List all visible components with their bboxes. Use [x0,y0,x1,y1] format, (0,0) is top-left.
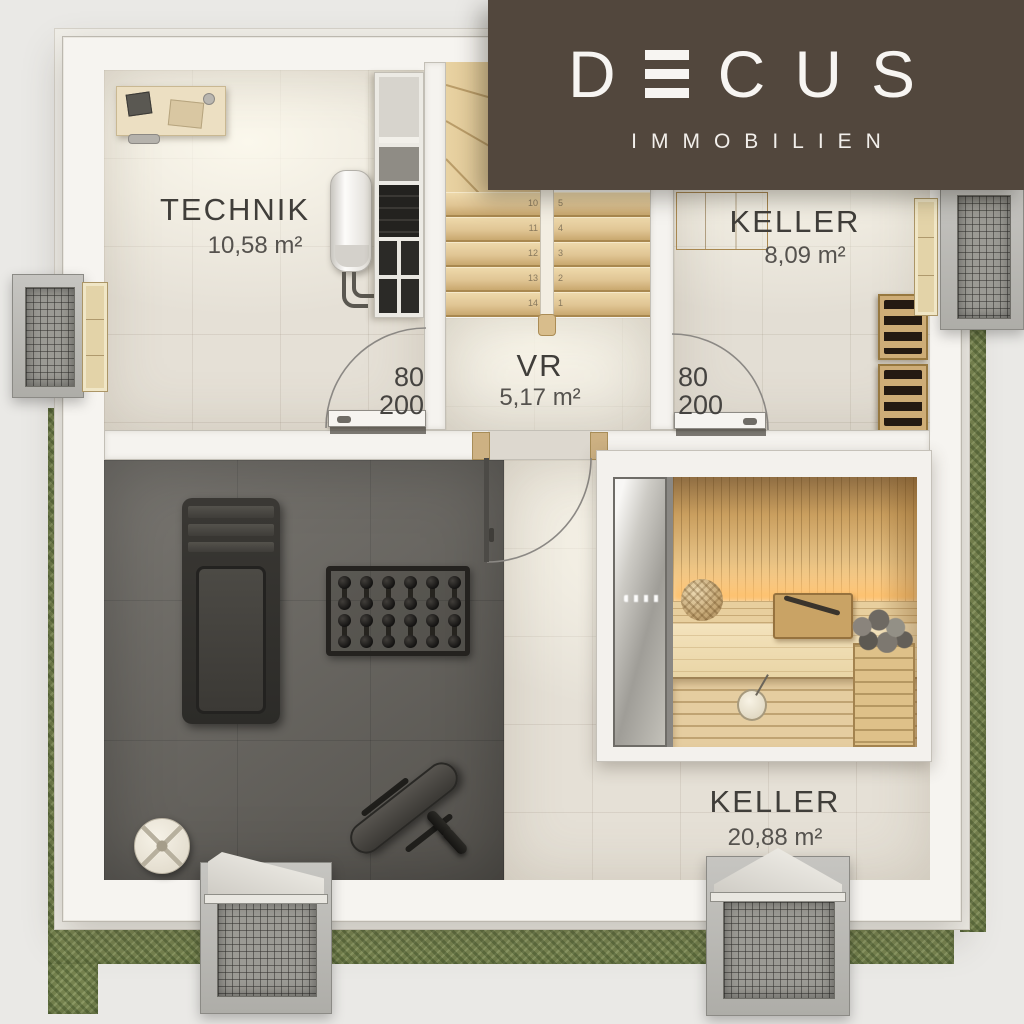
dumbbell [404,614,417,648]
brand-letter: D [568,36,616,112]
wine-rack [878,364,928,432]
stair-newel-post [538,314,556,336]
wine-bottles [884,370,922,426]
dumbbell [448,576,461,610]
dumbbell [404,576,417,610]
basement-window-left [82,282,108,392]
sauna-led-display [624,595,660,602]
brand-panel: D CUS IMMOBILIEN [488,0,1024,190]
desk-chair [128,134,160,144]
treadmill [182,498,280,724]
room-area-keller-large: 20,88 m² [650,824,900,852]
dumbbell-row [338,614,461,648]
glass-door-handle [489,528,494,542]
room-label-keller-small: KELLER [670,204,920,240]
rattan-ball [681,579,723,621]
stair-center-rail [540,188,554,318]
glass-door-leaf [484,458,489,562]
treadmill-console [188,506,274,518]
door-threshold [676,428,766,436]
desk-lamp [203,93,215,105]
sauna-bucket [737,689,767,721]
window-frame-bar [204,894,328,904]
well-grate [25,287,75,387]
room-area-keller-small: 8,09 m² [680,242,930,270]
shelf-compartment [379,77,419,143]
technik-door-width-label: 80 [318,364,424,390]
room-label-technik: TECHNIK [110,192,360,228]
dumbbell [338,614,351,648]
room-label-keller-large: KELLER [650,784,900,820]
stair-step-number: 2 [558,273,572,283]
keller-door-width-label: 80 [678,364,784,390]
desk-papers [168,99,205,128]
door-threshold [330,426,426,434]
technik-door-height-label: 200 [318,392,424,418]
brand-subtitle: IMMOBILIEN [617,130,895,154]
dumbbell [426,614,439,648]
window-frame-bar [710,892,846,902]
sauna-room [596,450,932,762]
stair-step-number: 14 [524,298,538,308]
glass-door-opening [488,431,592,459]
treadmill-belt [196,566,266,714]
well-grate [217,901,317,997]
stair-step-number: 4 [558,223,572,233]
stylized-e-icon [645,50,689,98]
shelf-gray-unit [379,147,419,181]
treadmill-console [188,524,274,536]
av-receiver-stack [379,185,419,237]
dumbbell-row [338,576,461,610]
tech-equipment-shelf [374,72,424,318]
well-grate [723,901,835,999]
sauna-stones [851,609,913,653]
dumbbell [360,614,373,648]
bench-pad [344,756,465,860]
desk [116,86,226,136]
door-handle [743,418,757,425]
basement-window-top-right [914,198,938,316]
keller-door-height-label: 200 [678,392,784,418]
brand-wordmark: D CUS [568,36,944,112]
sauna-tray [773,593,853,639]
dumbbell-rack [326,566,470,656]
stair-step-number: 13 [524,273,538,283]
sauna-interior [673,477,917,747]
stair-step-number: 1 [558,298,572,308]
stair-step-number: 10 [524,198,538,208]
sauna-heater [853,643,915,747]
brand-letters: CUS [718,36,944,112]
laptop [126,91,153,116]
equipment-grid-boxes [379,241,419,313]
dumbbell [382,614,395,648]
dumbbell [338,576,351,610]
door-post [472,432,490,460]
dumbbell [360,576,373,610]
window-well-top-right [940,182,1024,330]
treadmill-console [188,542,274,552]
stair-step-number: 3 [558,248,572,258]
glass-door-swing-arc [487,458,591,562]
floor-plan-canvas: 10 11 12 13 14 5 4 3 2 1 [0,0,1024,1024]
sauna-ladle [783,595,840,616]
dumbbell [448,614,461,648]
stair-step-number: 5 [558,198,572,208]
dumbbell [382,576,395,610]
well-grate [957,195,1011,319]
room-area-vr: 5,17 m² [440,384,640,412]
dumbbell [426,576,439,610]
window-well-left [12,274,84,398]
room-label-vr: VR [440,348,640,384]
stair-step-number: 12 [524,248,538,258]
stair-step-number: 11 [524,223,538,233]
workout-bench [330,742,480,882]
floor-fan [134,818,190,874]
sauna-glass-door [613,477,667,747]
boiler-pipe [352,272,376,298]
room-area-technik: 10,58 m² [130,232,380,260]
